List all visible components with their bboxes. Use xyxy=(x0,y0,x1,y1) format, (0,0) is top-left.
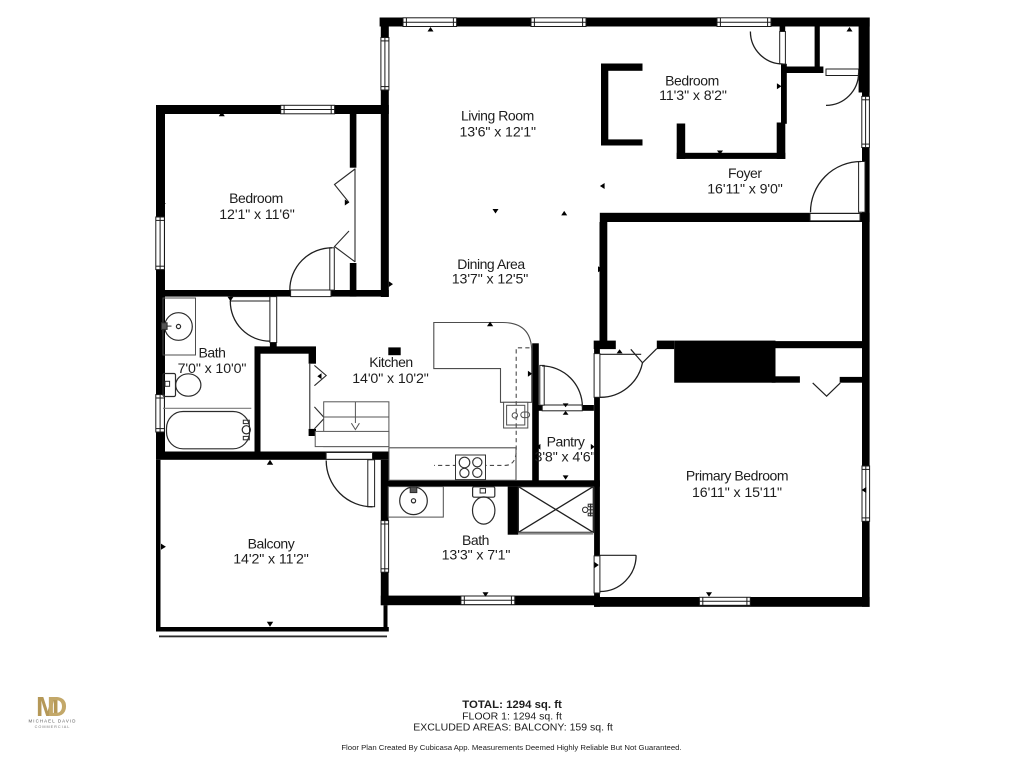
svg-text:11'3" x 8'2": 11'3" x 8'2" xyxy=(659,88,727,104)
svg-text:Foyer: Foyer xyxy=(728,165,762,181)
svg-text:Bath: Bath xyxy=(462,532,489,548)
svg-text:D: D xyxy=(47,691,67,722)
svg-text:13'3" x 7'1": 13'3" x 7'1" xyxy=(442,547,511,563)
svg-text:16'11" x 9'0": 16'11" x 9'0" xyxy=(707,182,783,198)
svg-text:COMMERCIAL: COMMERCIAL xyxy=(35,725,71,729)
svg-text:Pantry: Pantry xyxy=(547,434,585,450)
svg-text:3'8" x 4'6": 3'8" x 4'6" xyxy=(535,450,596,466)
svg-text:14'2" x 11'2": 14'2" x 11'2" xyxy=(233,552,309,568)
svg-text:EXCLUDED AREAS: BALCONY: 159 s: EXCLUDED AREAS: BALCONY: 159 sq. ft xyxy=(413,721,613,733)
svg-text:Bedroom: Bedroom xyxy=(665,72,719,88)
svg-text:16'11" x 15'11": 16'11" x 15'11" xyxy=(692,485,782,501)
svg-text:Living Room: Living Room xyxy=(461,107,534,123)
svg-text:Balcony: Balcony xyxy=(248,536,295,552)
svg-text:Kitchen: Kitchen xyxy=(369,354,413,370)
svg-text:MICHAEL DAVID: MICHAEL DAVID xyxy=(29,719,77,724)
svg-text:Primary Bedroom: Primary Bedroom xyxy=(686,468,788,484)
svg-text:Bedroom: Bedroom xyxy=(229,190,283,206)
svg-text:Dining Area: Dining Area xyxy=(457,256,525,272)
svg-text:13'7" x 12'5": 13'7" x 12'5" xyxy=(452,271,529,287)
svg-text:Floor Plan Created By Cubicasa: Floor Plan Created By Cubicasa App. Meas… xyxy=(341,743,681,752)
svg-text:Bath: Bath xyxy=(199,344,226,360)
svg-text:7'0" x 10'0": 7'0" x 10'0" xyxy=(178,361,247,377)
svg-text:TOTAL: 1294 sq. ft: TOTAL: 1294 sq. ft xyxy=(462,699,562,711)
svg-text:12'1" x 11'6": 12'1" x 11'6" xyxy=(219,207,295,223)
svg-text:14'0" x 10'2": 14'0" x 10'2" xyxy=(352,371,429,387)
svg-text:13'6" x 12'1": 13'6" x 12'1" xyxy=(459,125,536,141)
